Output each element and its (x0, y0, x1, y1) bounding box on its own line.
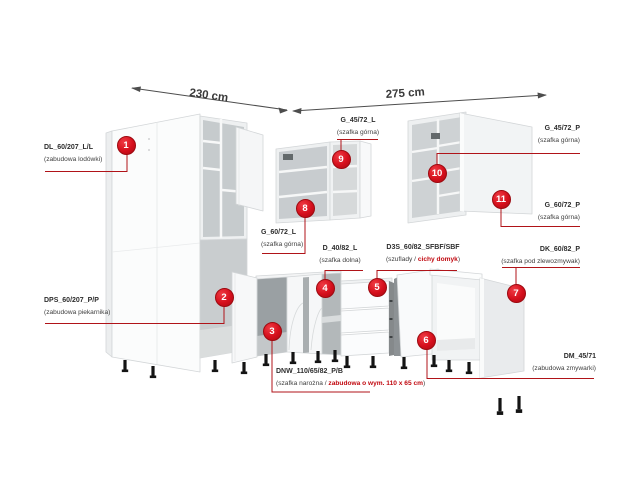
label-code: DNW_110/65/82_P/B (276, 367, 436, 376)
marker-8: 8 (296, 199, 315, 218)
dimension-lines: 230 cm 275 cm (131, 86, 547, 114)
label-dm-45-71: DM_45/71 (zabudowa zmywarki) (498, 352, 596, 373)
marker-7: 7 (507, 284, 526, 303)
label-code: G_45/72_P (486, 124, 580, 133)
label-g-45-72-p: G_45/72_P (szafka górna) (486, 124, 580, 145)
label-dk-60-82: DK_60/82_P (szafka pod zlewozmywak) (486, 245, 580, 266)
marker-9: 9 (332, 150, 351, 169)
label-d3s-60-82: D3S_60/82_SFBF/SBF (szuflady / cichy dom… (378, 243, 468, 264)
label-code: D3S_60/82_SFBF/SBF (378, 243, 468, 252)
kitchen-diagram: 230 cm 275 cm (0, 0, 640, 480)
dim-left-text: 230 cm (189, 87, 229, 104)
marker-11: 11 (492, 190, 511, 209)
marker-4: 4 (316, 279, 335, 298)
label-desc: (szafka górna) (324, 129, 392, 137)
marker-1: 1 (117, 136, 136, 155)
label-desc: (zabudowa lodówki) (44, 156, 134, 164)
label-desc: (szafka narożna / zabudowa o wym. 110 x … (276, 380, 436, 388)
marker-6: 6 (417, 331, 436, 350)
label-desc: (zabudowa zmywarki) (498, 365, 596, 373)
label-code: DPS_60/207_P/P (44, 296, 144, 305)
label-code: G_45/72_L (324, 116, 392, 125)
label-desc: (szuflady / cichy domyk) (378, 256, 468, 264)
label-dnw-110: DNW_110/65/82_P/B (szafka narożna / zabu… (276, 367, 436, 388)
label-desc: (szafka górna) (486, 214, 580, 222)
dim-right-text: 275 cm (385, 86, 425, 101)
label-desc: (szafka górna) (486, 137, 580, 145)
label-desc: (szafka dolna) (304, 257, 376, 265)
label-g-45-72-l: G_45/72_L (szafka górna) (324, 116, 392, 137)
label-desc: (zabudowa piekarnika) (44, 309, 144, 317)
wall-cabinets-left (276, 141, 371, 223)
label-code: DM_45/71 (498, 352, 596, 361)
marker-5: 5 (368, 278, 387, 297)
marker-3: 3 (263, 322, 282, 341)
label-code: G_60/72_L (261, 228, 321, 237)
label-dps-60-207: DPS_60/207_P/P (zabudowa piekarnika) (44, 296, 144, 317)
marker-10: 10 (428, 164, 447, 183)
marker-2: 2 (215, 288, 234, 307)
label-g-60-72-l: G_60/72_L (szafka górna) (261, 228, 321, 249)
label-desc: (szafka górna) (261, 241, 321, 249)
label-desc: (szafka pod zlewozmywak) (486, 258, 580, 266)
label-code: DK_60/82_P (486, 245, 580, 254)
